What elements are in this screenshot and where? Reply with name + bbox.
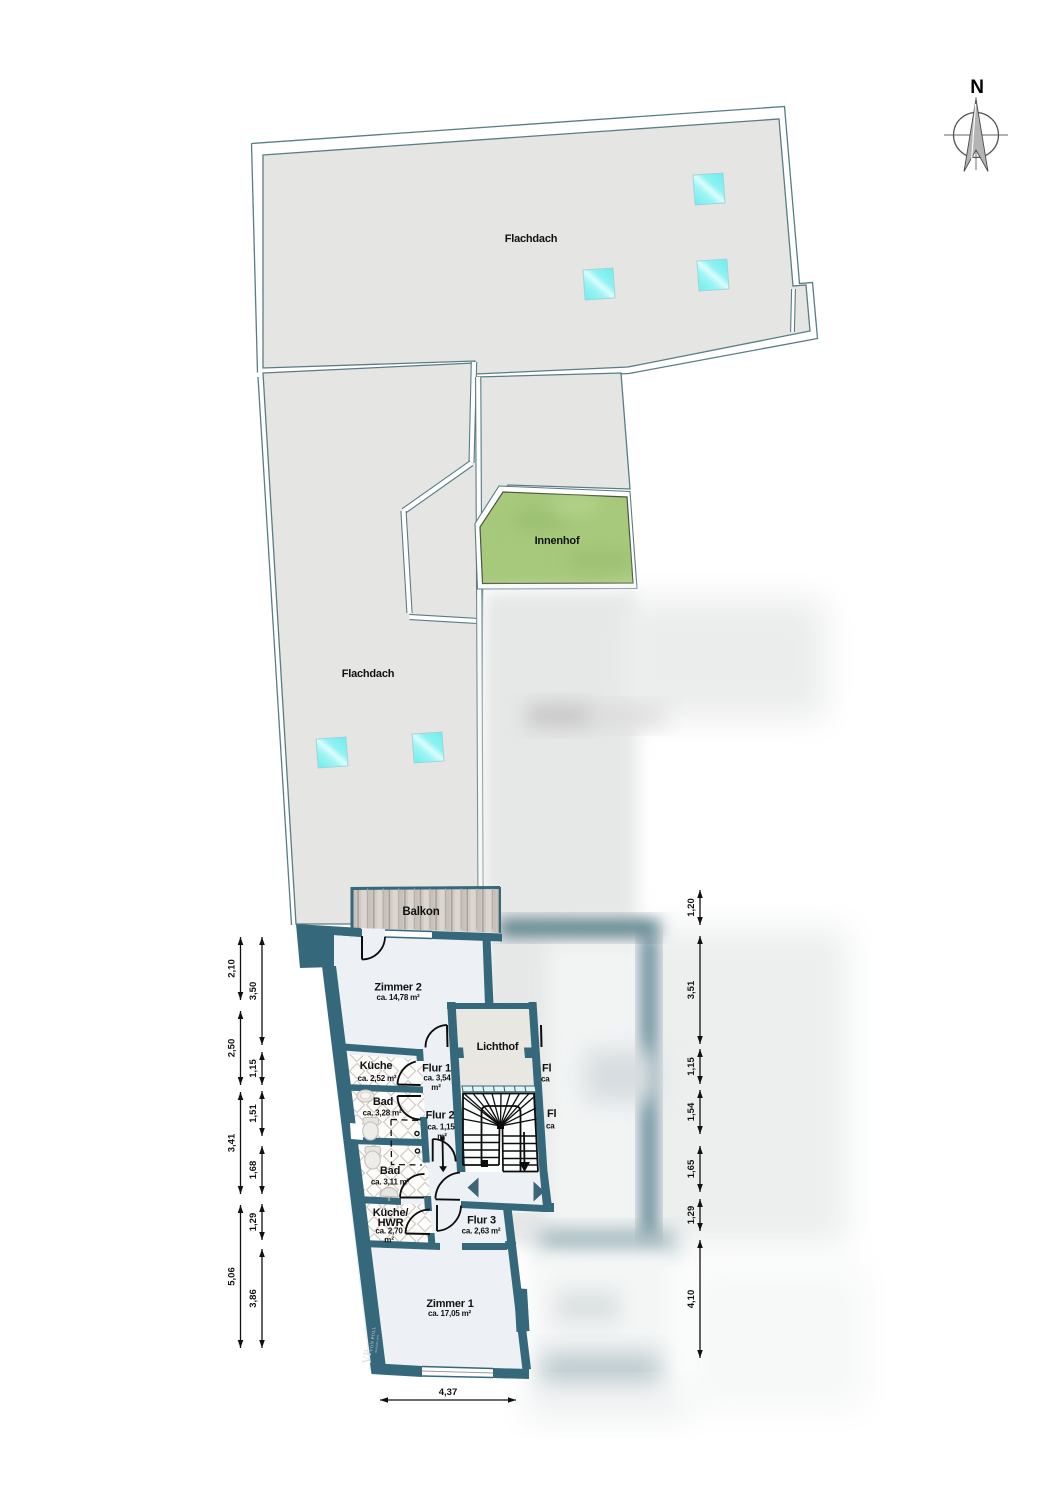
svg-text:1,15: 1,15 (686, 1057, 697, 1076)
svg-text:1,20: 1,20 (686, 898, 697, 917)
svg-text:ca. 2,70: ca. 2,70 (375, 1227, 403, 1236)
svg-text:Balkon: Balkon (402, 906, 439, 918)
svg-text:5,06: 5,06 (227, 1267, 238, 1286)
svg-text:2,50: 2,50 (227, 1039, 238, 1058)
svg-text:1,29: 1,29 (248, 1213, 259, 1232)
svg-text:Flur 2: Flur 2 (426, 1110, 455, 1122)
svg-text:ca. 1,15: ca. 1,15 (427, 1123, 455, 1132)
svg-text:Flachdach: Flachdach (505, 233, 558, 245)
svg-text:N: N (970, 77, 984, 98)
svg-text:3,51: 3,51 (686, 980, 697, 999)
svg-text:Flachdach: Flachdach (342, 668, 395, 680)
svg-text:Flur 3: Flur 3 (467, 1215, 496, 1227)
svg-text:4,10: 4,10 (686, 1290, 697, 1309)
svg-text:ca. 14,78 m²: ca. 14,78 m² (377, 993, 420, 1002)
svg-text:1,68: 1,68 (248, 1161, 259, 1180)
svg-text:1,65: 1,65 (686, 1159, 697, 1178)
svg-text:3,50: 3,50 (248, 982, 259, 1001)
svg-text:1,54: 1,54 (686, 1102, 697, 1121)
svg-text:ca. 3,28 m²: ca. 3,28 m² (363, 1109, 402, 1118)
svg-text:ca. 3,11 m²: ca. 3,11 m² (371, 1178, 410, 1187)
svg-text:ca. 2,52 m²: ca. 2,52 m² (358, 1074, 397, 1083)
svg-text:ca: ca (546, 1122, 555, 1131)
svg-text:1,51: 1,51 (248, 1104, 259, 1123)
svg-text:ca. 2,63 m²: ca. 2,63 m² (462, 1227, 501, 1236)
svg-text:Fl: Fl (542, 1063, 552, 1075)
svg-text:ca. 3,54: ca. 3,54 (423, 1074, 451, 1083)
svg-text:Innenhof: Innenhof (535, 535, 580, 547)
svg-text:ca: ca (541, 1075, 550, 1084)
svg-text:Zimmer 2: Zimmer 2 (374, 982, 421, 994)
svg-text:1,29: 1,29 (686, 1206, 697, 1225)
svg-text:ca. 17,05 m²: ca. 17,05 m² (428, 1309, 471, 1318)
svg-text:Bad: Bad (380, 1165, 400, 1177)
svg-text:4,37: 4,37 (439, 1387, 458, 1398)
svg-text:m²: m² (431, 1083, 441, 1092)
svg-text:1,15: 1,15 (248, 1059, 259, 1078)
svg-text:Fl: Fl (547, 1108, 557, 1120)
svg-text:3,86: 3,86 (248, 1289, 259, 1308)
svg-text:Lichthof: Lichthof (477, 1041, 519, 1053)
svg-text:m²: m² (384, 1236, 394, 1245)
svg-text:Bad: Bad (373, 1096, 393, 1108)
svg-text:2,10: 2,10 (227, 959, 238, 978)
svg-text:3,41: 3,41 (227, 1133, 238, 1152)
svg-text:Küche: Küche (360, 1060, 393, 1072)
svg-text:m²: m² (437, 1132, 447, 1141)
